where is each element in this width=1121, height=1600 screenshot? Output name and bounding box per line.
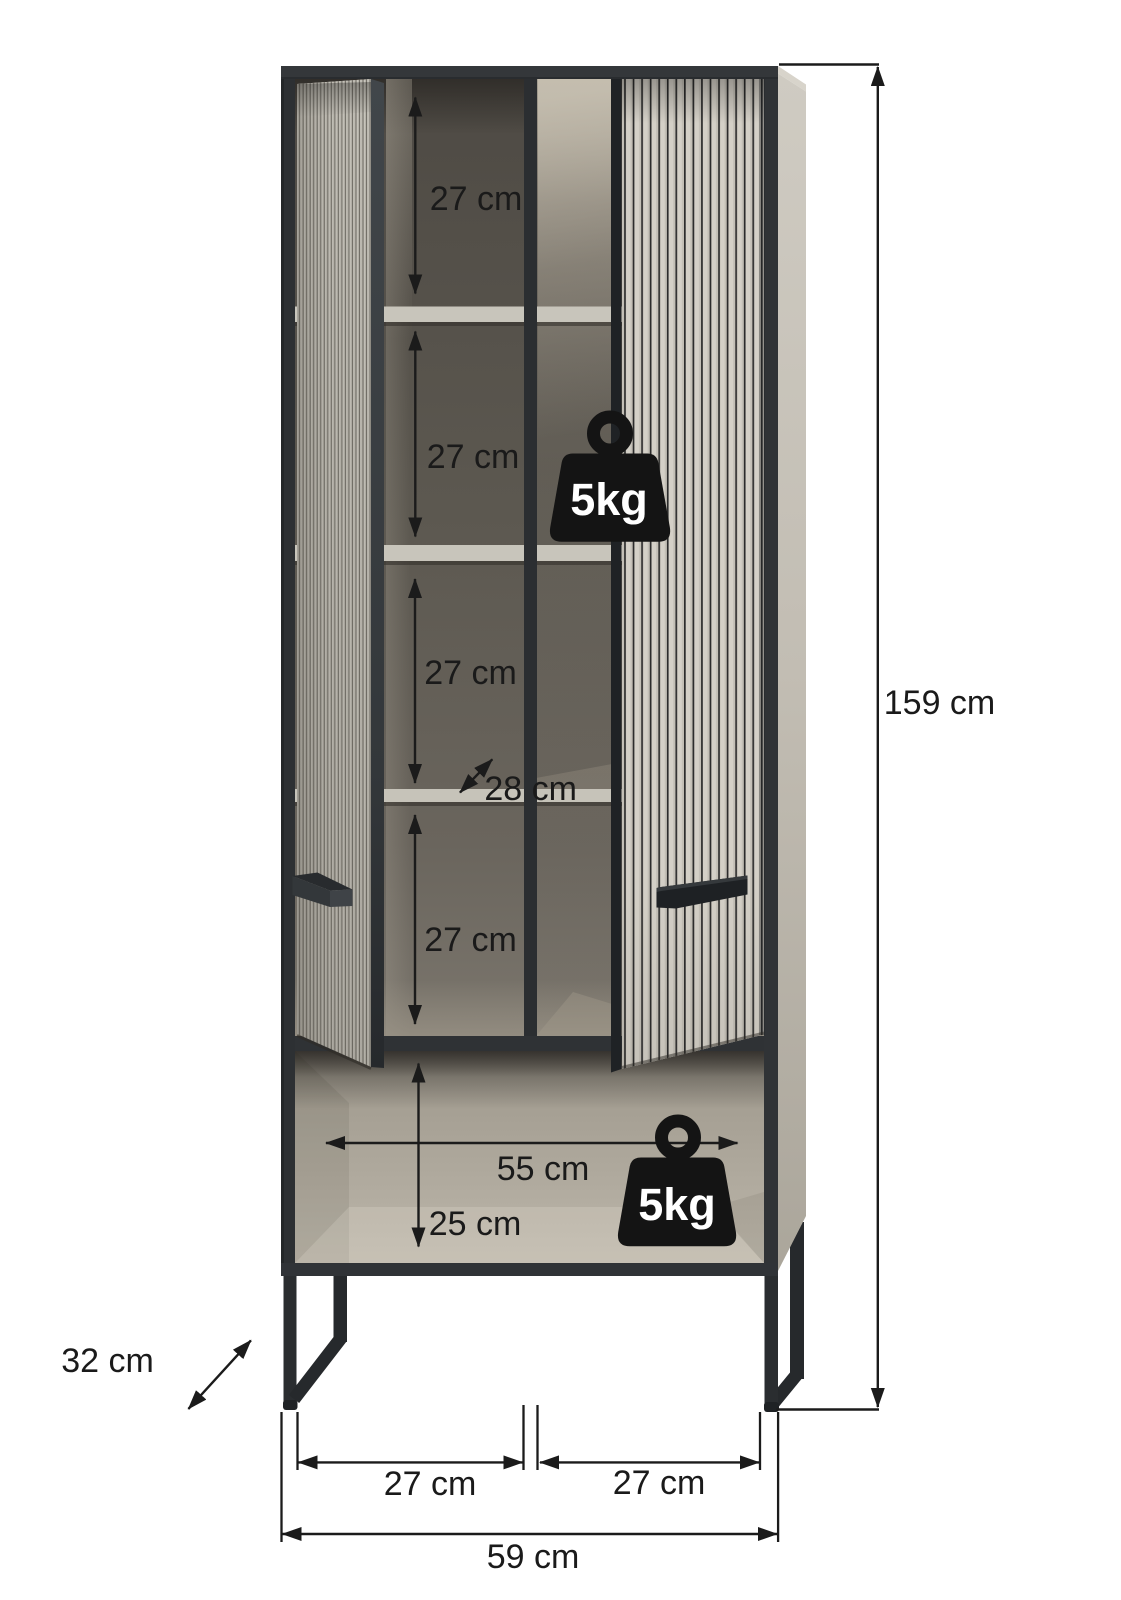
svg-text:5kg: 5kg	[638, 1179, 716, 1230]
svg-text:27 cm: 27 cm	[427, 438, 520, 476]
svg-text:27 cm: 27 cm	[424, 654, 517, 692]
svg-text:5kg: 5kg	[570, 474, 648, 525]
svg-text:27 cm: 27 cm	[424, 921, 517, 959]
svg-text:27 cm: 27 cm	[384, 1465, 477, 1503]
svg-text:27 cm: 27 cm	[613, 1464, 706, 1502]
svg-text:25 cm: 25 cm	[429, 1205, 522, 1243]
svg-text:59 cm: 59 cm	[487, 1538, 580, 1576]
svg-text:32 cm: 32 cm	[61, 1342, 154, 1380]
svg-text:55 cm: 55 cm	[497, 1150, 590, 1188]
svg-text:159 cm: 159 cm	[884, 684, 996, 722]
svg-text:28 cm: 28 cm	[484, 770, 577, 808]
svg-text:27 cm: 27 cm	[430, 180, 523, 218]
